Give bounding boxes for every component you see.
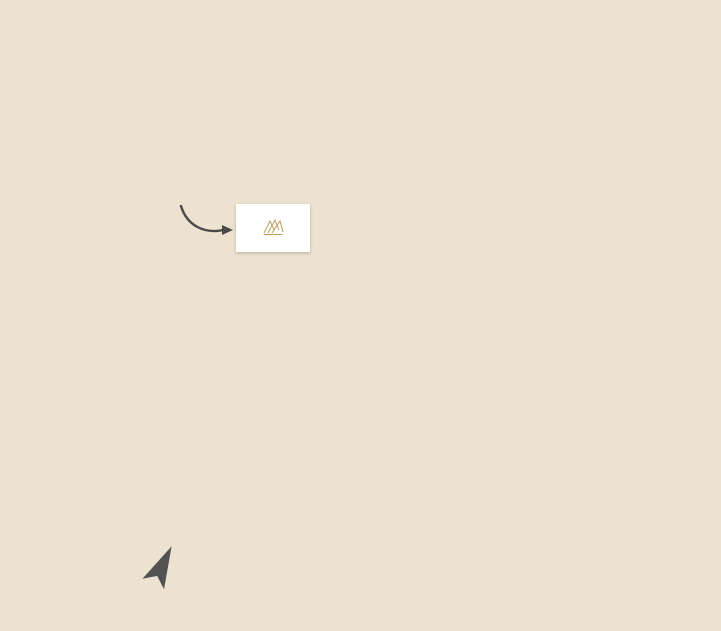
site-location-arrow (175, 202, 237, 238)
compass (130, 542, 190, 597)
compass-needle-icon (134, 536, 191, 597)
crown-icon (258, 218, 288, 236)
development-logo (236, 204, 310, 252)
site-map (0, 0, 721, 631)
